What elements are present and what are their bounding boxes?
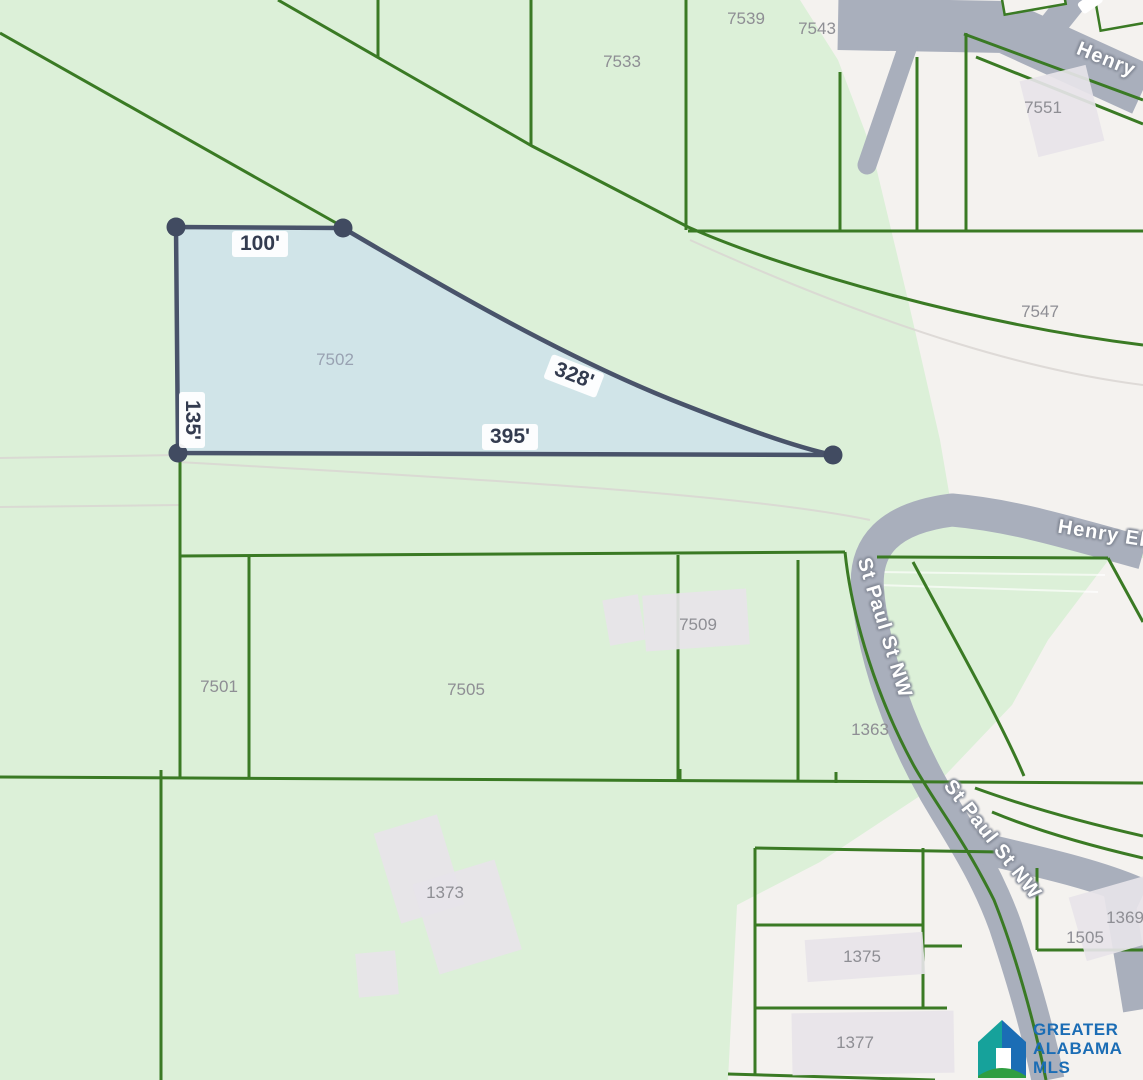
parcel-label: 1375 bbox=[843, 947, 881, 967]
parcel-label: 7501 bbox=[200, 677, 238, 697]
dimension-label: 395' bbox=[482, 424, 538, 450]
mls-house-icon bbox=[976, 1016, 1028, 1078]
logo-line-2: ALABAMA bbox=[1033, 1039, 1122, 1058]
parcel-label: 7505 bbox=[447, 680, 485, 700]
parcel-label: 1373 bbox=[426, 883, 464, 903]
mls-logo-text: GREATER ALABAMA MLS bbox=[1033, 1020, 1122, 1078]
map-canvas[interactable]: 7533753975437551754775027501750575091363… bbox=[0, 0, 1143, 1080]
parcel-label: 7539 bbox=[727, 9, 765, 29]
parcel-label: 7547 bbox=[1021, 302, 1059, 322]
logo-line-1: GREATER bbox=[1033, 1020, 1122, 1039]
parcel-label: 1377 bbox=[836, 1033, 874, 1053]
parcel-label: 7502 bbox=[316, 350, 354, 370]
parcel-label: 7543 bbox=[798, 19, 836, 39]
dimension-label: 100' bbox=[232, 231, 288, 257]
parcel-vertex[interactable] bbox=[824, 446, 843, 465]
mls-logo: GREATER ALABAMA MLS bbox=[976, 1016, 1122, 1078]
dimension-label: 135' bbox=[179, 392, 205, 448]
parcel-vertex[interactable] bbox=[167, 218, 186, 237]
parcel-vertex[interactable] bbox=[334, 219, 353, 238]
parcel-label: 1363 bbox=[851, 720, 889, 740]
parcel-label: 1505 bbox=[1066, 928, 1104, 948]
parcel-label: 1369 bbox=[1106, 908, 1143, 928]
map-layers bbox=[0, 0, 1143, 1080]
parcel-label: 7551 bbox=[1024, 98, 1062, 118]
logo-line-3: MLS bbox=[1033, 1058, 1122, 1077]
parcel-label: 7509 bbox=[679, 615, 717, 635]
parcel-label: 7533 bbox=[603, 52, 641, 72]
